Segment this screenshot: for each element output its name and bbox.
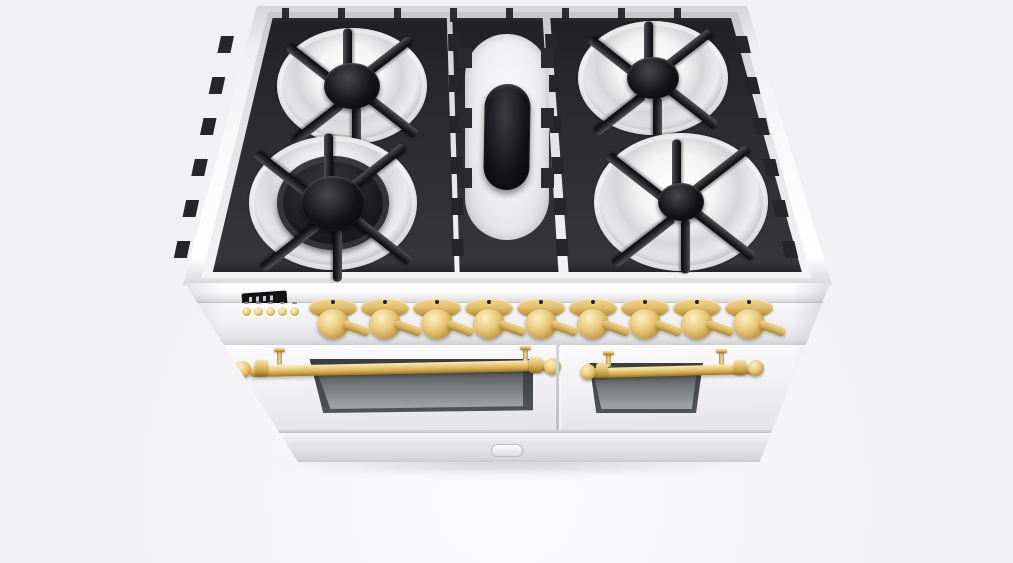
handle-collar xyxy=(529,357,542,373)
handle-finial-left xyxy=(234,361,251,378)
panel-button-tick xyxy=(244,302,249,304)
knob-handle xyxy=(757,319,786,337)
knob-handle xyxy=(705,319,734,337)
handle-post xyxy=(277,351,282,365)
handle-post-cap xyxy=(716,349,727,353)
center-burner-tray xyxy=(465,34,549,240)
knob-handle xyxy=(445,319,474,337)
knob-indicator-dot xyxy=(331,300,335,304)
grate-back-pins xyxy=(282,8,726,22)
panel-button-5[interactable] xyxy=(290,307,299,316)
knob-indicator-dot xyxy=(695,300,699,304)
knob-indicator-dot xyxy=(747,300,751,304)
handle-post-cap xyxy=(520,346,531,350)
handle-post-cap xyxy=(603,351,614,355)
drawer-latch[interactable] xyxy=(491,444,523,457)
panel-button-tick xyxy=(268,302,273,304)
knob-handle xyxy=(601,319,630,337)
knob-indicator-dot xyxy=(487,300,491,304)
handle-post xyxy=(719,352,724,365)
panel-button-3[interactable] xyxy=(266,307,275,316)
grate-finger-tabs-left xyxy=(459,48,472,226)
knob-handle xyxy=(653,319,682,337)
oven-doors xyxy=(185,345,830,431)
knob-indicator-dot xyxy=(643,300,647,304)
grate-finger-tabs-right xyxy=(541,48,554,226)
panel-button-tick xyxy=(292,302,297,304)
knob-indicator-dot xyxy=(383,300,387,304)
control-panel xyxy=(185,303,830,346)
range-body xyxy=(185,283,830,462)
knob-handle xyxy=(549,319,578,337)
handle-collar xyxy=(255,360,268,376)
handle-finial-left xyxy=(580,364,596,380)
handle-finial-right xyxy=(748,360,764,376)
knob-indicator-dot xyxy=(591,300,595,304)
panel-button-tick xyxy=(280,302,285,304)
panel-button-2[interactable] xyxy=(254,307,263,316)
handle-collar xyxy=(734,360,746,375)
knob-indicator-dot xyxy=(539,300,543,304)
knob-handle xyxy=(393,319,422,337)
panel-button-1[interactable] xyxy=(242,307,251,316)
door-gap-seam xyxy=(556,345,559,431)
knob-handle xyxy=(497,319,526,337)
knob-indicator-dot xyxy=(435,300,439,304)
panel-button-4[interactable] xyxy=(278,307,287,316)
knob-handle xyxy=(341,319,370,337)
panel-button-tick xyxy=(256,302,261,304)
handle-post-cap xyxy=(274,348,285,352)
scene xyxy=(0,0,1013,563)
handle-collar xyxy=(596,363,608,378)
